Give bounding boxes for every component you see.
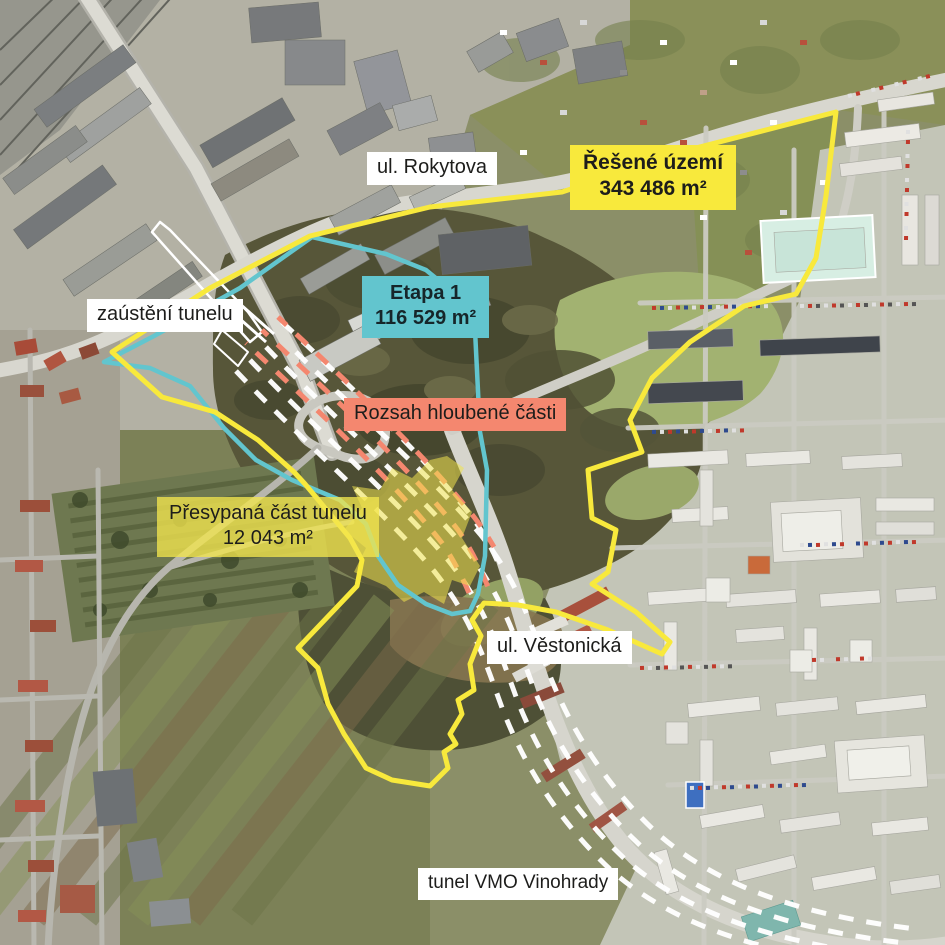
label-ul-vestonicka: ul. Věstonická <box>487 631 632 664</box>
label-resene-uzemi: Řešené území 343 486 m² <box>570 145 736 210</box>
aerial-map-canvas: ul. Rokytova Řešené území 343 486 m² Eta… <box>0 0 945 945</box>
label-presypana-cast: Přesypaná část tunelu 12 043 m² <box>157 497 379 557</box>
label-etapa1-area: 116 529 m² <box>375 306 476 331</box>
label-rozsah-hloubene-casti: Rozsah hloubené části <box>344 398 566 431</box>
aerial-photo <box>0 0 945 945</box>
label-etapa1: Etapa 1 116 529 m² <box>362 276 489 338</box>
label-tunel-vmo-vinohrady: tunel VMO Vinohrady <box>418 868 618 900</box>
label-zausteni-tunelu: zaústění tunelu <box>87 299 243 332</box>
label-resene-uzemi-area: 343 486 m² <box>583 176 723 202</box>
label-resene-uzemi-title: Řešené území <box>583 150 723 176</box>
label-presypana-title: Přesypaná část tunelu <box>169 501 367 526</box>
label-ul-rokytova: ul. Rokytova <box>367 152 497 185</box>
label-etapa1-title: Etapa 1 <box>375 281 476 306</box>
label-presypana-area: 12 043 m² <box>169 526 367 551</box>
